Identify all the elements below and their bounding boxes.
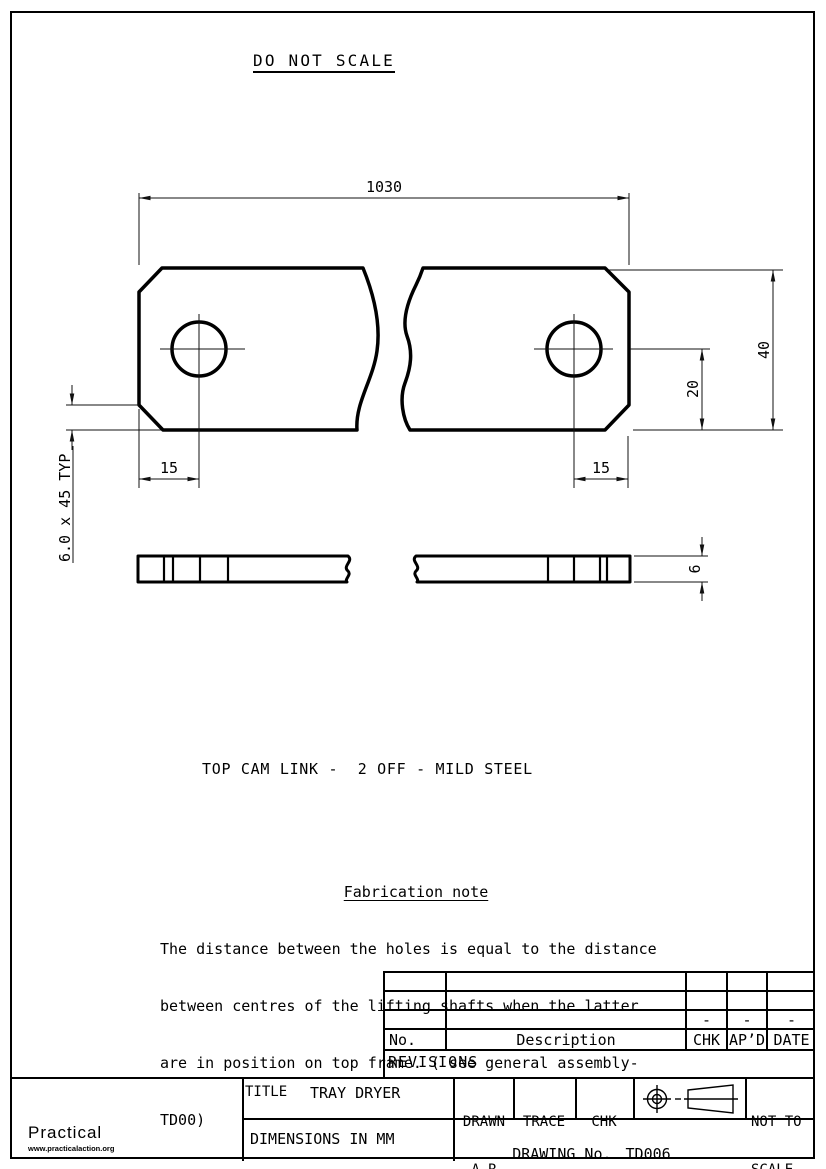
revisions-table: - - - No. Description CHK AP’D DATE REVI…: [383, 971, 815, 1077]
drawing-number-value: TD006: [626, 1145, 671, 1163]
revision-cell: [728, 992, 768, 1011]
dim-text-thickness: 6: [686, 564, 704, 573]
revision-cell: [385, 973, 447, 992]
do-not-scale-note: DO NOT SCALE: [253, 51, 395, 73]
dimension-lines: [66, 193, 783, 601]
scale-note-line: NOT TO: [751, 1114, 802, 1130]
revision-cell: [687, 973, 728, 992]
revision-cell: [768, 992, 815, 1011]
org-contact: www.practicalaction.org infoserv@practic…: [28, 1124, 142, 1169]
first-angle-projection-icon: [633, 1079, 745, 1118]
fabrication-note-line: The distance between the holes is equal …: [160, 940, 672, 959]
part-description: TOP CAM LINK - 2 OFF - MILD STEEL: [202, 760, 533, 778]
left-strip-outline: [138, 556, 350, 582]
revisions-header-apd: AP’D: [728, 1030, 768, 1051]
revision-cell: [385, 992, 447, 1011]
dim-text-chamfer: 6.0 x 45 TYP: [56, 454, 74, 562]
title-label: TITLE: [245, 1084, 287, 1100]
dim-text-plate-width: 40: [755, 341, 773, 359]
title-block: Practical Action www.practicalaction.org…: [12, 1077, 815, 1159]
revisions-header-chk: CHK: [687, 1030, 728, 1051]
org-url: www.practicalaction.org: [28, 1144, 142, 1154]
revision-cell: -: [687, 1011, 728, 1030]
revision-cell: -: [768, 1011, 815, 1030]
revision-cell: [687, 992, 728, 1011]
scale-note: NOT TO SCALE: [751, 1082, 802, 1169]
drawing-sheet: 1030 40 20 15 15 6 6.0 x 45 TYP DO NOT S…: [0, 0, 826, 1169]
revisions-footer: REVISIONS: [385, 1051, 815, 1077]
title-block-divider: [745, 1079, 747, 1118]
revision-cell: -: [728, 1011, 768, 1030]
dim-text-hole-offset-right: 15: [592, 459, 610, 477]
drawing-number-label: DRAWING No.: [512, 1145, 611, 1163]
side-view: [138, 556, 630, 582]
drawing-number: DRAWING No.TD006: [458, 1127, 671, 1169]
revisions-header-no: No.: [385, 1030, 447, 1051]
revision-cell: [728, 973, 768, 992]
dim-text-overall-length: 1030: [366, 178, 402, 196]
right-strip-outline: [414, 556, 630, 582]
title-value: TRAY DRYER: [310, 1084, 400, 1102]
revision-cell: [385, 1011, 447, 1030]
dim-text-hole-offset-left: 15: [160, 459, 178, 477]
scale-note-line: SCALE: [751, 1162, 802, 1169]
revisions-header-date: DATE: [768, 1030, 815, 1051]
revision-cell: [447, 992, 687, 1011]
dim-overall-length: [139, 193, 629, 265]
dim-text-hole-to-edge: 20: [684, 380, 702, 398]
revision-cell: [447, 973, 687, 992]
revisions-header-description: Description: [447, 1030, 687, 1051]
dimension-texts: 1030 40 20 15 15 6 6.0 x 45 TYP: [56, 178, 773, 574]
units-note: DIMENSIONS IN MM: [250, 1130, 395, 1148]
revision-cell: [768, 973, 815, 992]
title-block-divider: [242, 1079, 244, 1161]
fabrication-note-title: Fabrication note: [160, 883, 672, 902]
side-view-feature-lines: [164, 556, 607, 582]
revision-cell: [447, 1011, 687, 1030]
